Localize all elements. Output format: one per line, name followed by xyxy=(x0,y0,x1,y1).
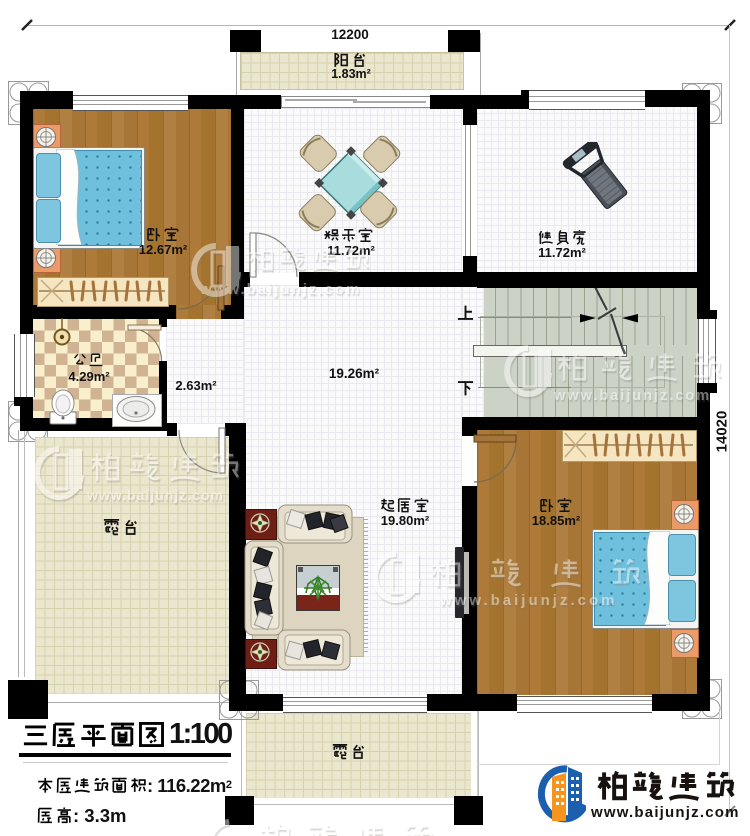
svg-text:www.baijunjz.com: www.baijunjz.com xyxy=(86,487,224,503)
svg-text:www.baijunjz.com: www.baijunjz.com xyxy=(439,592,617,608)
svg-text:www.baijunjz.com: www.baijunjz.com xyxy=(199,281,361,298)
svg-text:www.baijunjz.com: www.baijunjz.com xyxy=(553,388,711,402)
